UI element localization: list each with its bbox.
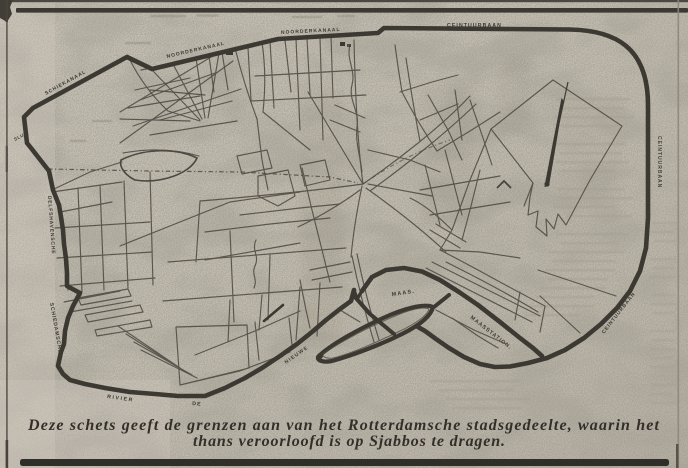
svg-text:DE: DE <box>192 401 202 408</box>
svg-text:Deze schets geeft de grenzen a: Deze schets geeft de grenzen aan van het… <box>27 417 660 434</box>
svg-text:CEINTUURBAAN: CEINTUURBAAN <box>656 136 662 188</box>
svg-text:thans veroorloofd is op Sjabbo: thans veroorloofd is op Sjabbos te drage… <box>193 433 505 450</box>
svg-text:CEINTUURBAAN: CEINTUURBAAN <box>447 23 502 29</box>
